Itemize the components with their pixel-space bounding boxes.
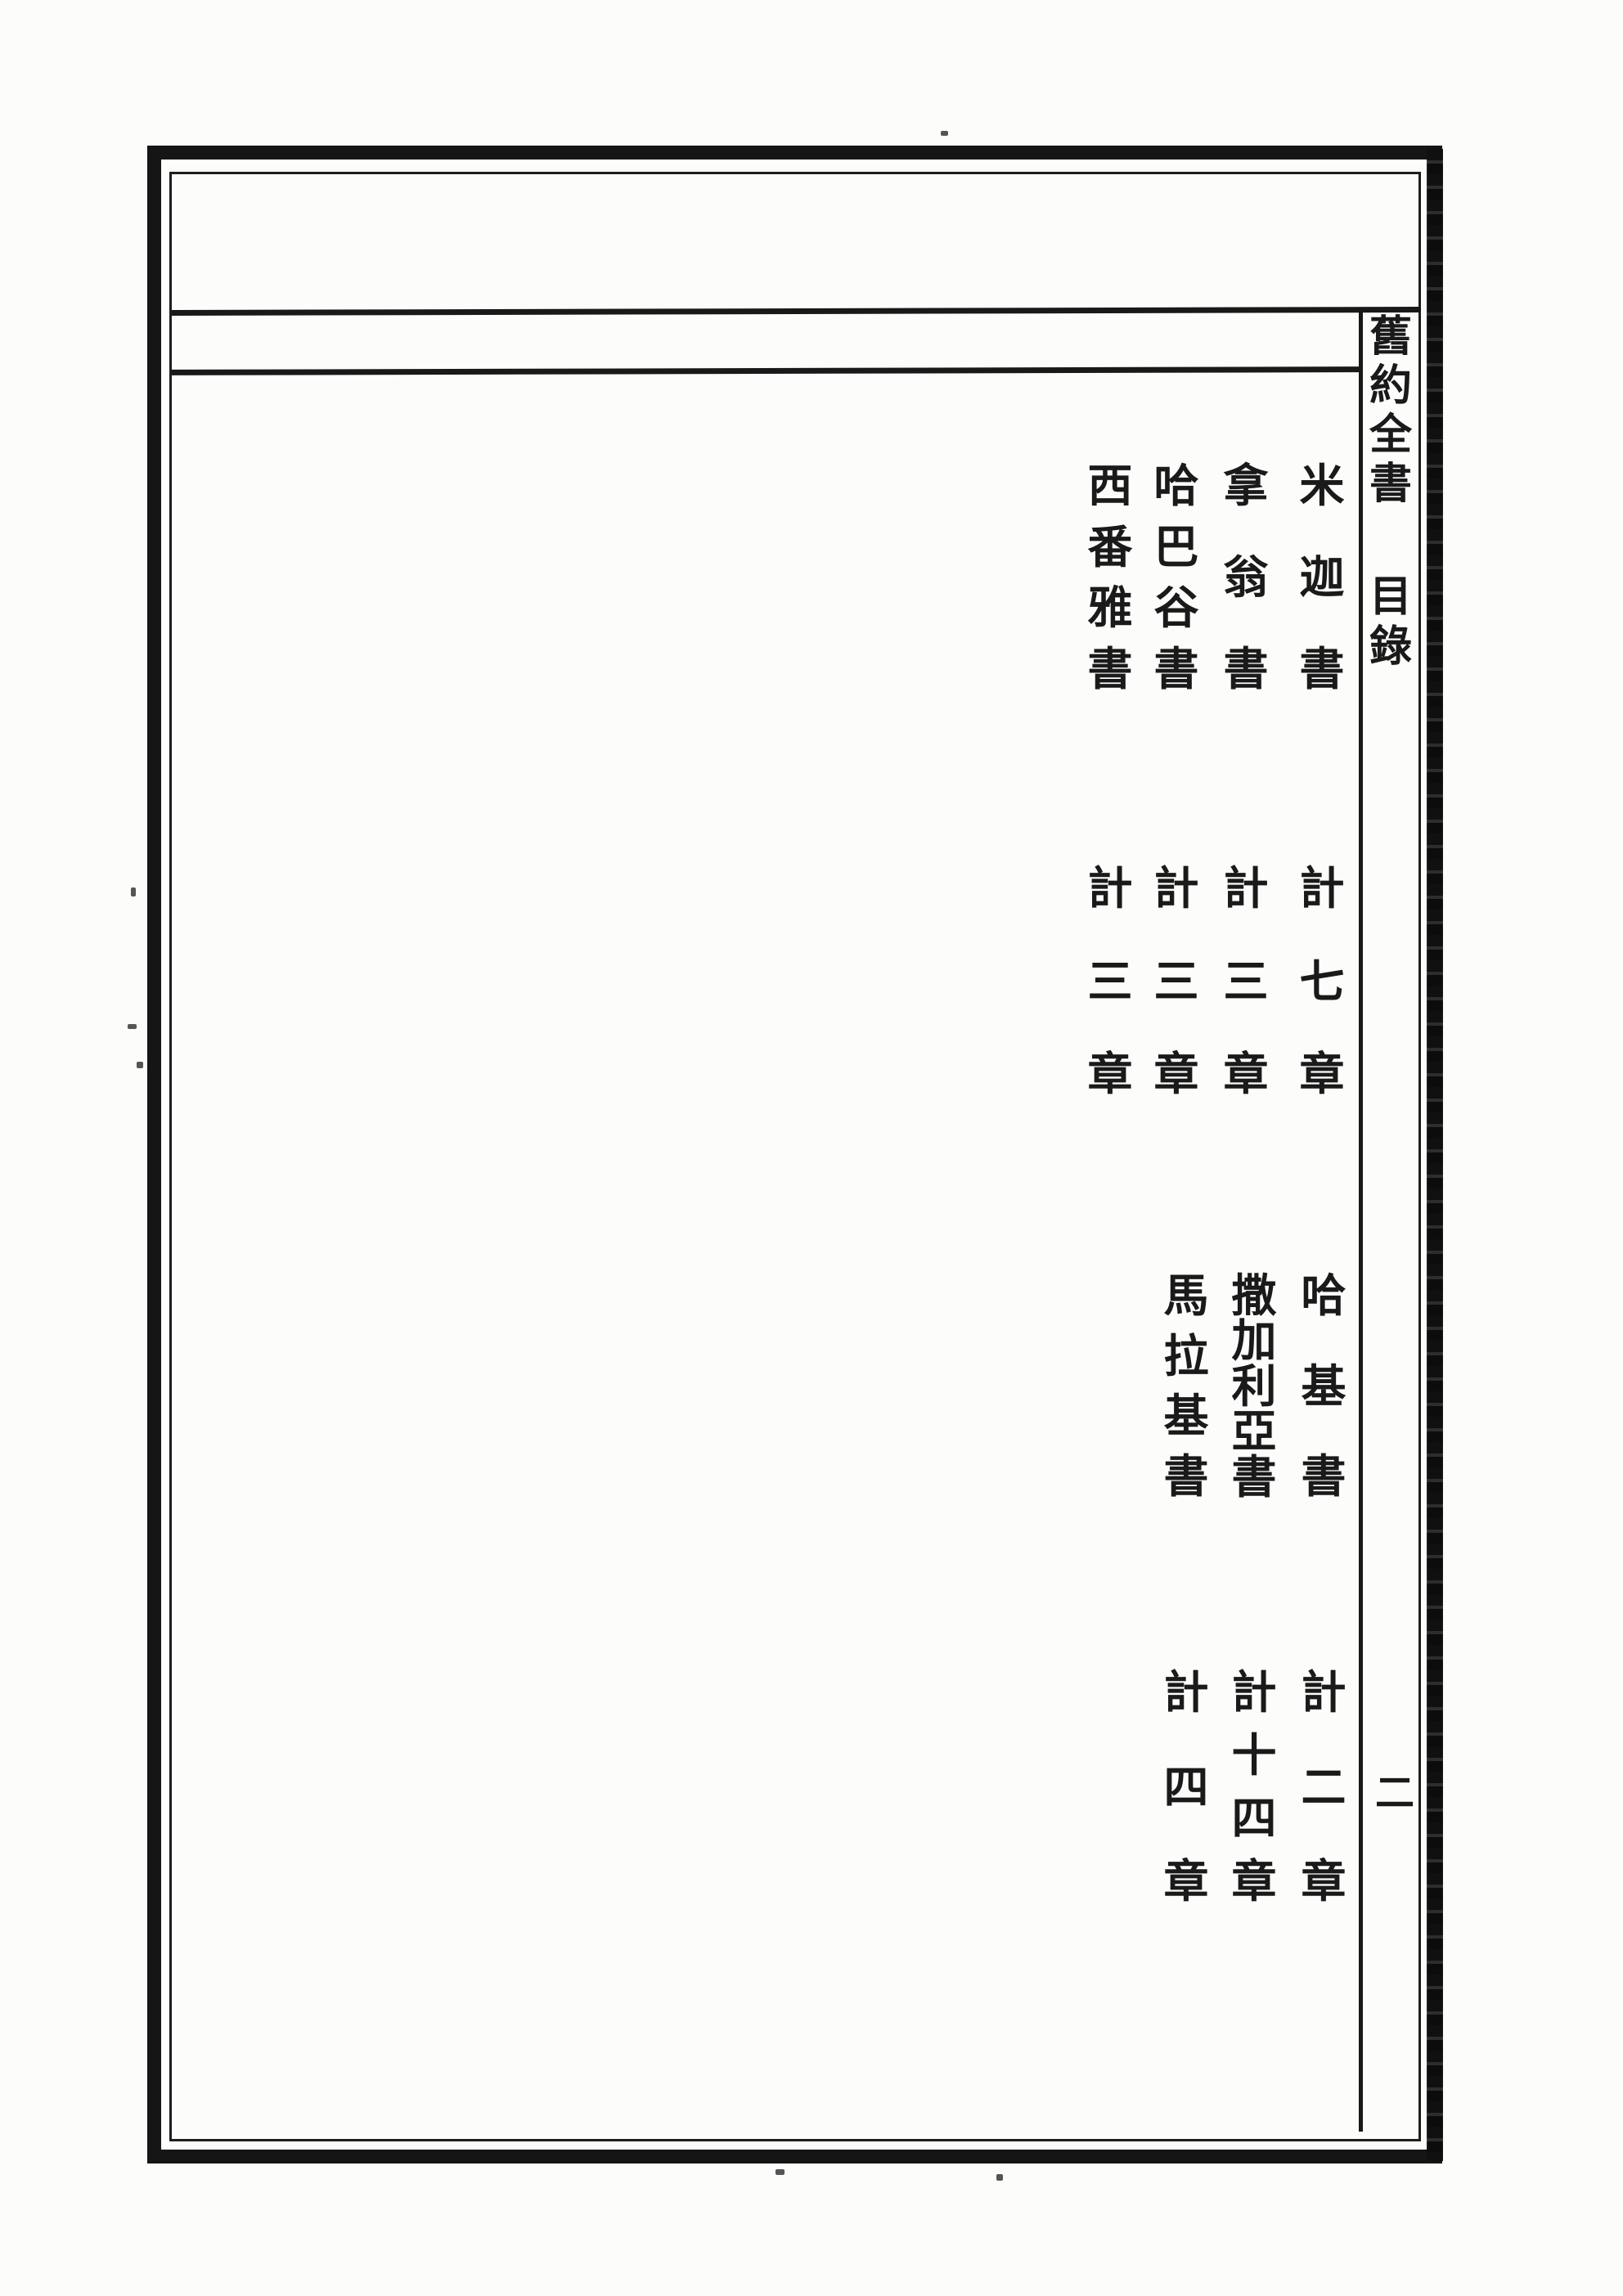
ink-speck [996, 2174, 1003, 2181]
book-title-zechariah: 撒加利亞書 [1230, 1273, 1278, 1499]
scanned-page: { "page": { "title": "舊約全書", "section_la… [0, 0, 1623, 2296]
book-title-micah: 米迦書 [1298, 463, 1346, 692]
section-label-toc: 目錄 [1367, 576, 1414, 672]
book-title-haggai: 哈基書 [1300, 1273, 1347, 1499]
ink-speck [128, 1024, 137, 1029]
chapter-count-micah: 計七章 [1298, 865, 1346, 1097]
chapter-count-malachi: 計四章 [1162, 1669, 1210, 1904]
ink-speck [941, 131, 948, 136]
chapter-count-zephaniah: 計三章 [1086, 865, 1134, 1097]
page-border-right-texture [1427, 149, 1443, 2161]
page-number: 二 [1371, 1773, 1418, 1819]
page-title: 舊約全書 [1367, 316, 1414, 509]
book-title-malachi: 馬拉基書 [1162, 1273, 1210, 1499]
chapter-count-zechariah: 計十四章 [1230, 1669, 1278, 1904]
chapter-count-habakkuk: 計三章 [1153, 865, 1200, 1097]
book-title-zephaniah: 西番雅書 [1086, 463, 1134, 692]
chapter-count-nahum: 計三章 [1222, 865, 1270, 1097]
ink-speck [131, 887, 136, 896]
margin-divider-line [1359, 311, 1363, 2132]
chapter-count-haggai: 計二章 [1300, 1669, 1347, 1904]
ink-speck [776, 2169, 785, 2175]
ink-speck [137, 1062, 143, 1068]
book-title-nahum: 拿翁書 [1222, 463, 1270, 692]
book-title-habakkuk: 哈巴谷書 [1153, 463, 1200, 692]
